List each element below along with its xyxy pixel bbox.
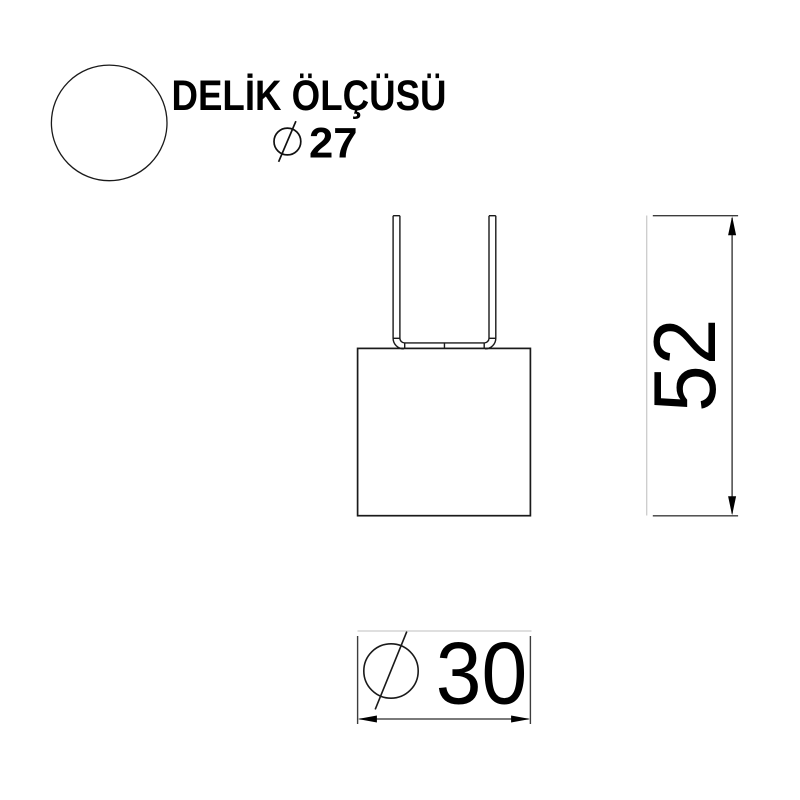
- svg-text:DELİK ÖLÇÜSÜ: DELİK ÖLÇÜSÜ: [172, 73, 447, 120]
- svg-text:27: 27: [309, 119, 358, 167]
- svg-text:52: 52: [635, 318, 734, 412]
- svg-text:30: 30: [436, 624, 528, 723]
